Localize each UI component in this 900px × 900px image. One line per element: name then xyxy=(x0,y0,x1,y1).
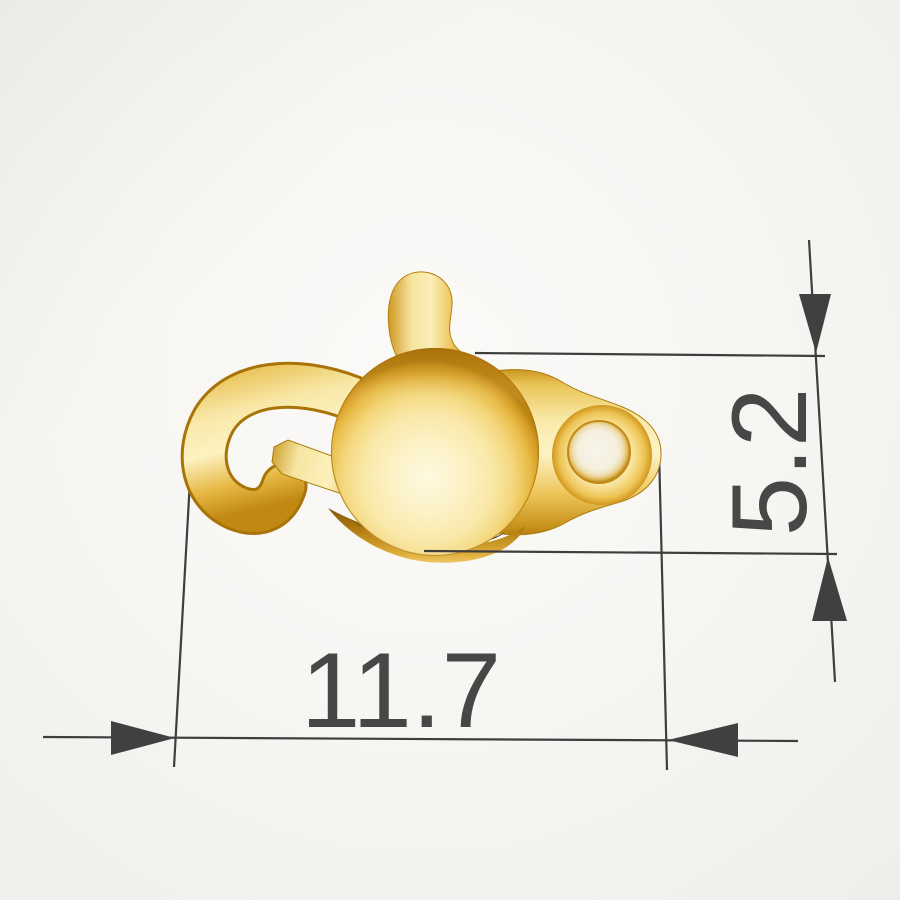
height-extension-line-top xyxy=(475,353,825,356)
clasp-top-knob xyxy=(388,272,468,356)
width-extension-line-left xyxy=(174,462,191,767)
height-arrow-bottom xyxy=(812,557,847,621)
width-arrow-right xyxy=(668,723,738,757)
width-arrow-left xyxy=(111,721,175,755)
eyelet-hole xyxy=(568,421,630,483)
render-viewport: 11.7 5.2 xyxy=(0,0,900,900)
height-arrow-top xyxy=(799,294,831,353)
width-extension-line-right xyxy=(659,450,667,770)
width-dimension-label: 11.7 xyxy=(301,630,501,750)
render-stage: 11.7 5.2 xyxy=(0,0,900,900)
clasp-render xyxy=(204,272,661,563)
height-dimension-label: 5.2 xyxy=(709,388,829,537)
